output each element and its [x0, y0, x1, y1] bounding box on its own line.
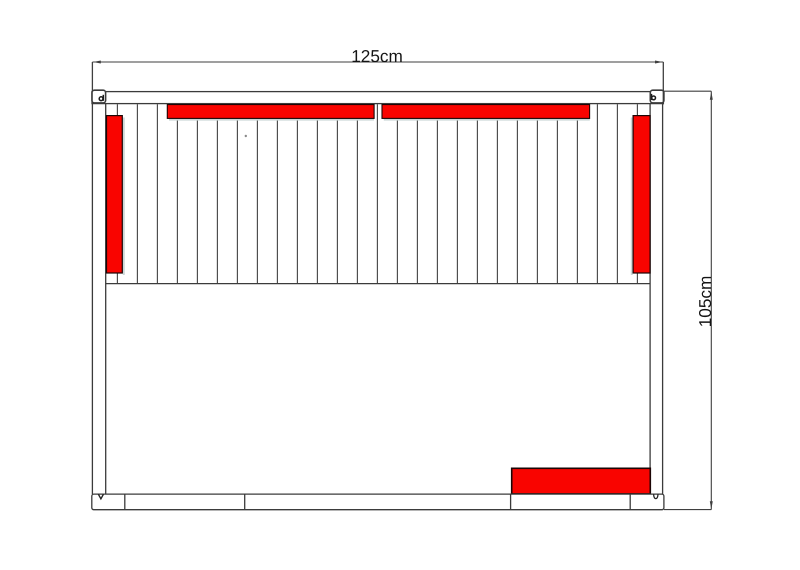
- svg-text:125cm: 125cm: [351, 46, 403, 66]
- svg-text:105cm: 105cm: [695, 276, 715, 328]
